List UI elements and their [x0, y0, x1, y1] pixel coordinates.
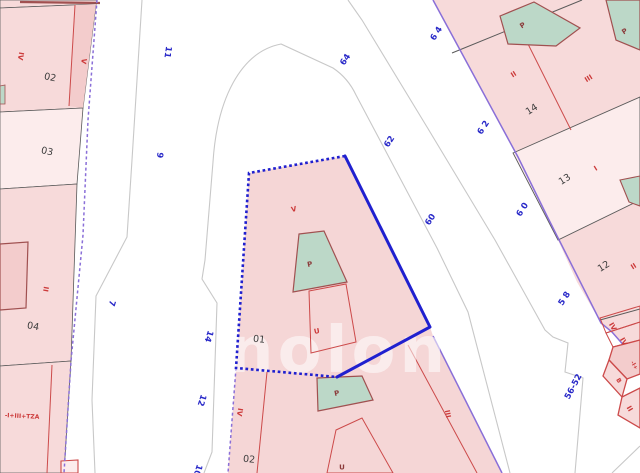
parcel-bottom-left[interactable]	[0, 361, 71, 473]
left-parcels-group	[0, 0, 100, 473]
map-canvas: nolon	[0, 0, 640, 473]
right-parcels-group	[433, 0, 640, 428]
cadastral-map: nolon 11971412106462606 46 26 05 856-520…	[0, 0, 640, 473]
street-curb	[92, 0, 142, 473]
building-in-parcel-04[interactable]	[0, 242, 28, 310]
street-island-edge	[202, 162, 217, 473]
parcel-03[interactable]	[0, 108, 83, 189]
small-green-building[interactable]	[0, 85, 5, 104]
boundary-line	[20, 2, 100, 3]
street-curb-corner	[612, 446, 640, 473]
